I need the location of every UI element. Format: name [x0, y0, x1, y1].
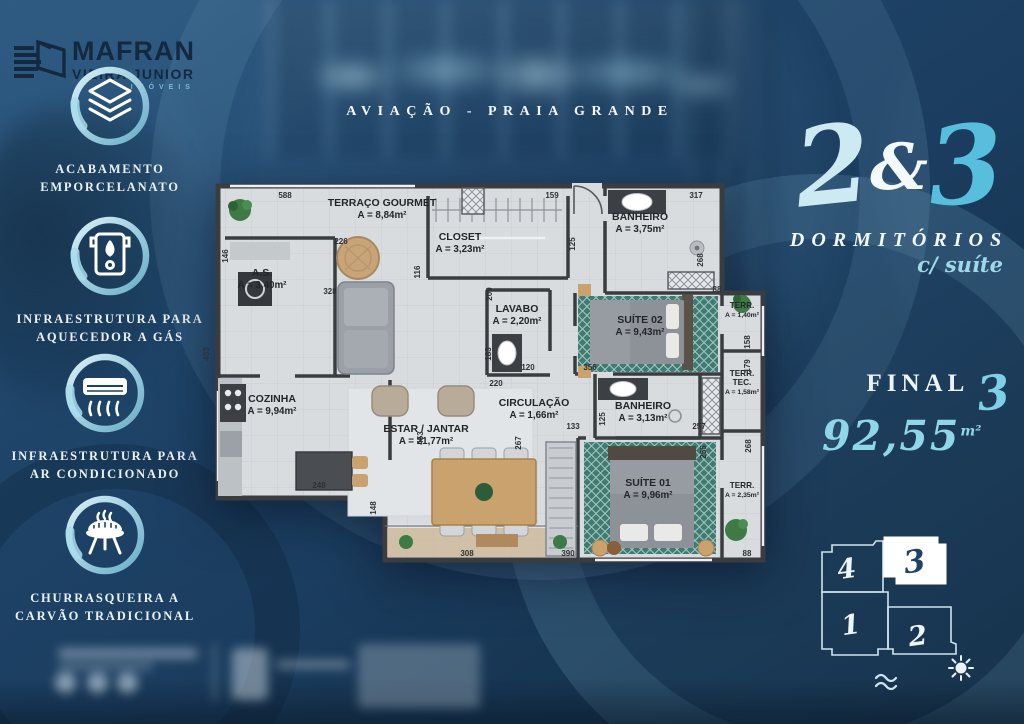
dimension-label: 209	[485, 287, 494, 301]
contact-block-blurred	[358, 644, 480, 708]
headline-ampersand: &	[870, 136, 928, 200]
contact-divider-blurred	[213, 644, 216, 700]
dimension-label: 120	[521, 363, 535, 372]
gas-heater-icon	[62, 208, 158, 304]
dimension-label: 125	[568, 237, 577, 251]
porcelain-tiles-icon	[62, 58, 158, 154]
dimension-label: 356	[583, 363, 597, 372]
dimension-label: 146	[221, 249, 230, 263]
dimension-label: 403	[202, 347, 211, 361]
unit-area-value: 92,55	[822, 412, 960, 460]
keyplan: 4 3 1 2	[818, 532, 1003, 717]
dimension-label: 133	[566, 422, 580, 431]
social-icon-blurred	[55, 672, 76, 693]
contact-text-blurred	[276, 660, 350, 669]
dimension-label: 88	[743, 549, 752, 558]
dimension-label: 183	[484, 347, 493, 361]
keyplan-number: 1	[839, 609, 862, 642]
dimension-label: 328	[323, 287, 337, 296]
dimension-label: 268	[744, 439, 753, 453]
feature-label: ACABAMENTO EMPORCELANATO	[5, 160, 215, 196]
feature-label: INFRAESTRUTURA PARA AR CONDICIONADO	[0, 447, 210, 483]
shaft-hatch	[462, 188, 484, 214]
dimension-label: 257	[692, 422, 706, 431]
dimension-label: 116	[413, 265, 422, 278]
floor-plan: TERRAÇO GOURMETA = 8,84m²A.S.A = 3,40m²C…	[200, 176, 770, 628]
dimension-label: 158	[743, 335, 752, 349]
air-conditioner-icon	[57, 345, 153, 441]
dimension-label: 88	[713, 285, 722, 294]
keyplan-number: 4	[835, 553, 858, 586]
dimension-label: 268	[696, 253, 705, 267]
feature-label: CHURRASQUEIRA A CARVÃO TRADICIONAL	[0, 589, 210, 625]
dimension-label: 248	[312, 481, 326, 490]
headline-number-3: 3	[924, 110, 1007, 223]
dimension-label: 588	[278, 191, 292, 200]
sea-waves-icon	[876, 675, 896, 689]
feature-porcelain: ACABAMENTO EMPORCELANATO	[5, 58, 215, 196]
final-label: FINAL	[867, 370, 970, 397]
dimension-label: 390	[561, 549, 575, 558]
keyplan-number: 2	[905, 620, 929, 653]
dimension-label: 226	[334, 237, 348, 246]
project-name-blurred	[300, 22, 730, 110]
room-label: SUÍTE 01A = 9,96m²	[624, 476, 674, 501]
feature-gas-heater: INFRAESTRUTURA PARA AQUECEDOR A GÁS	[5, 208, 215, 346]
flyer: MAFRAN VIEIRA JUNIOR IMÓVEIS ACABAMENTO …	[0, 0, 1024, 724]
barbecue-icon	[57, 487, 153, 583]
project-location: AVIAÇÃO - PRAIA GRANDE	[260, 104, 760, 120]
dimension-label: 220	[489, 379, 503, 388]
dimension-label: 125	[598, 412, 607, 426]
dimension-label: 159	[545, 191, 559, 200]
headline-suffix: c/ suíte	[785, 254, 1013, 275]
partner-logo-blurred	[232, 648, 268, 700]
headline-number-2: 2	[790, 108, 876, 223]
dimension-label: 267	[514, 436, 523, 450]
unit-area: 92,55m²	[822, 412, 1000, 460]
unit-area-unit: m²	[960, 423, 981, 439]
contact-text-blurred	[58, 648, 198, 659]
shaft-hatch	[668, 272, 714, 289]
social-icon-blurred	[87, 672, 108, 693]
dimension-label: 148	[369, 501, 378, 515]
sun-icon	[949, 656, 973, 680]
dimension-label: 317	[689, 191, 703, 200]
social-icon-blurred	[117, 672, 138, 693]
room-label: SUÍTE 02A = 9,43m²	[616, 313, 666, 338]
dimension-label: 308	[460, 549, 474, 558]
dimension-label: 255	[699, 445, 708, 459]
headline-bedrooms: 2&3 DORMITÓRIOS c/ suíte	[785, 112, 1013, 275]
feature-barbecue: CHURRASQUEIRA A CARVÃO TRADICIONAL	[0, 487, 210, 625]
feature-air-conditioner: INFRAESTRUTURA PARA AR CONDICIONADO	[0, 345, 210, 483]
feature-label: INFRAESTRUTURA PARA AQUECEDOR A GÁS	[5, 310, 215, 346]
headline-word: DORMITÓRIOS	[785, 230, 1013, 250]
contact-text-blurred	[58, 663, 153, 670]
dimension-label: 453	[416, 431, 425, 445]
dimension-label: 179	[743, 359, 752, 373]
